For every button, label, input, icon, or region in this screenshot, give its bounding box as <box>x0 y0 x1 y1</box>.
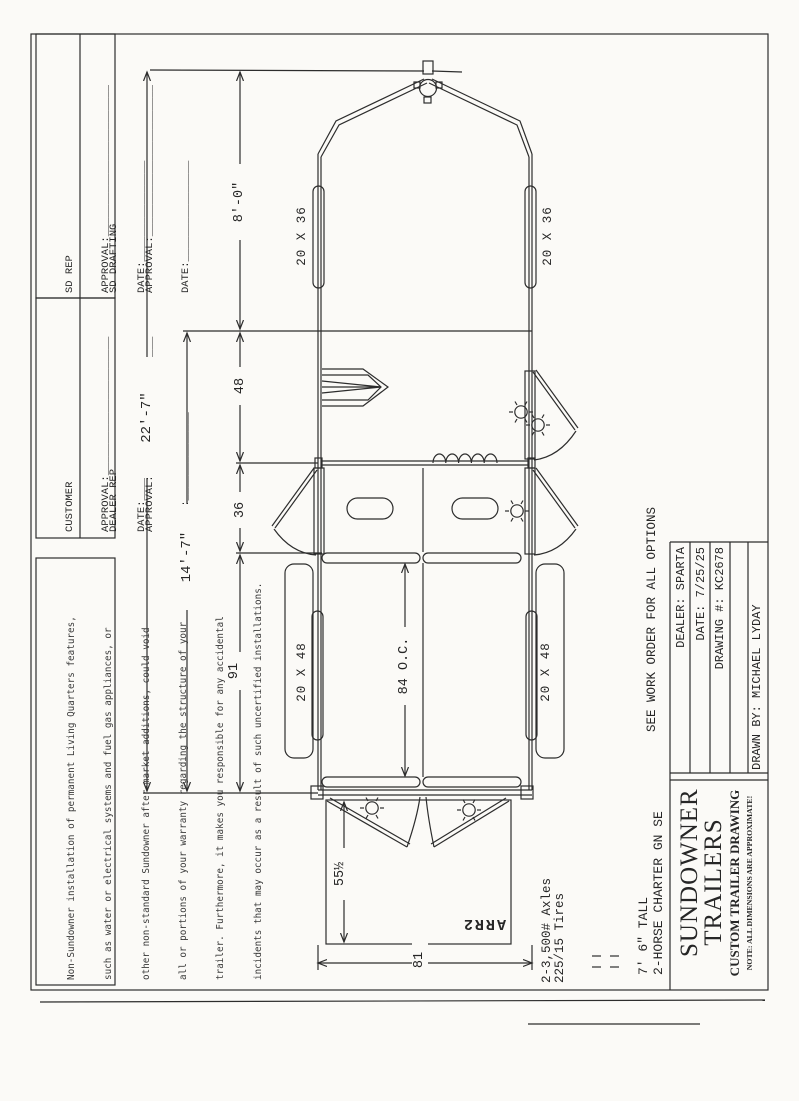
dim-gooseneck: 8'-0" <box>232 164 248 240</box>
drawing-subtitle: CUSTOM TRAILER DRAWING <box>728 783 743 983</box>
window-label-stall-left: 20 X 48 <box>295 624 309 720</box>
trailer-body <box>311 79 533 799</box>
drawn-by-field: DRAWN BY: MICHAEL LYDAY <box>750 548 765 770</box>
dim-main-floor: 14'-7" <box>179 504 195 610</box>
date-field: DATE: 7/25/25 <box>694 547 709 769</box>
see-work-order-note: SEE WORK ORDER FOR ALL OPTIONS <box>645 497 659 742</box>
dim-stall-area: 91 <box>227 652 243 690</box>
dim-stall-centers: 84 O.C. <box>397 627 413 705</box>
dealer-field: DEALER: SPARTA <box>674 547 689 769</box>
spec-model: 2-HORSE CHARTER GN SE <box>652 780 667 975</box>
company-name-line2: TRAILERS <box>700 812 729 952</box>
dim-mid-tack: 36 <box>233 492 249 528</box>
warranty-disclaimer: Non-Sundowner installation of permanent … <box>41 560 278 980</box>
spec-tires: 225/15 Tires <box>553 843 567 983</box>
bridle-hooks-icon <box>433 454 497 463</box>
dim-rear-width: 81 <box>412 941 428 979</box>
roof-vent-icon <box>347 498 393 519</box>
trailer-drawing-sheet: SD REP APPROVAL:________________________… <box>0 0 799 1101</box>
drawing-number-field: DRAWING #: KC2678 <box>713 547 728 769</box>
gooseneck-coupler-icon <box>414 61 462 103</box>
window-label-gn-right: 20 X 36 <box>541 188 555 284</box>
saddle-rack-icon <box>322 369 388 406</box>
dim-overall-length: 22'-7" <box>139 357 155 478</box>
mid-tack-door-swing-right <box>533 468 578 555</box>
stall-dividers <box>322 553 521 787</box>
approval-cell-sd-drafting: SD DRAFTING APPROVAL:___________________… <box>84 40 204 293</box>
window-label-gn-left: 20 X 36 <box>295 188 309 284</box>
arr2-stamp: ARR2 <box>452 915 506 932</box>
mid-tack-door-swing-left <box>272 468 317 555</box>
dress-door-swing <box>533 370 578 460</box>
window-label-stall-right: 20 X 48 <box>539 624 553 720</box>
roof-vent-icon <box>452 498 498 519</box>
drop-down-windows <box>285 186 564 758</box>
signature-dashes <box>592 956 619 967</box>
spec-height: 7' 6" TALL <box>637 780 652 975</box>
approximate-note: NOTE: ALL DIMENSIONS ARE APPROXIMATE! <box>746 788 755 978</box>
dim-door-swing: 55½ <box>333 848 349 900</box>
mid-tack-wall <box>315 458 535 468</box>
dim-dress-area: 48 <box>233 367 249 405</box>
